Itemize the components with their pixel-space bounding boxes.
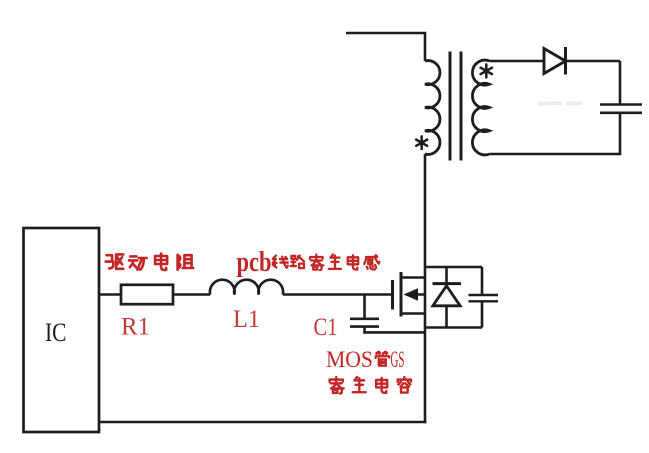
svg-text:L1: L1 <box>233 306 260 333</box>
svg-text:C1: C1 <box>314 312 338 341</box>
svg-text:pcb: pcb <box>237 246 272 278</box>
svg-text:IC: IC <box>45 318 67 347</box>
svg-text:GS: GS <box>391 347 405 372</box>
svg-text:MOS: MOS <box>326 347 373 372</box>
svg-text:R1: R1 <box>121 312 150 341</box>
